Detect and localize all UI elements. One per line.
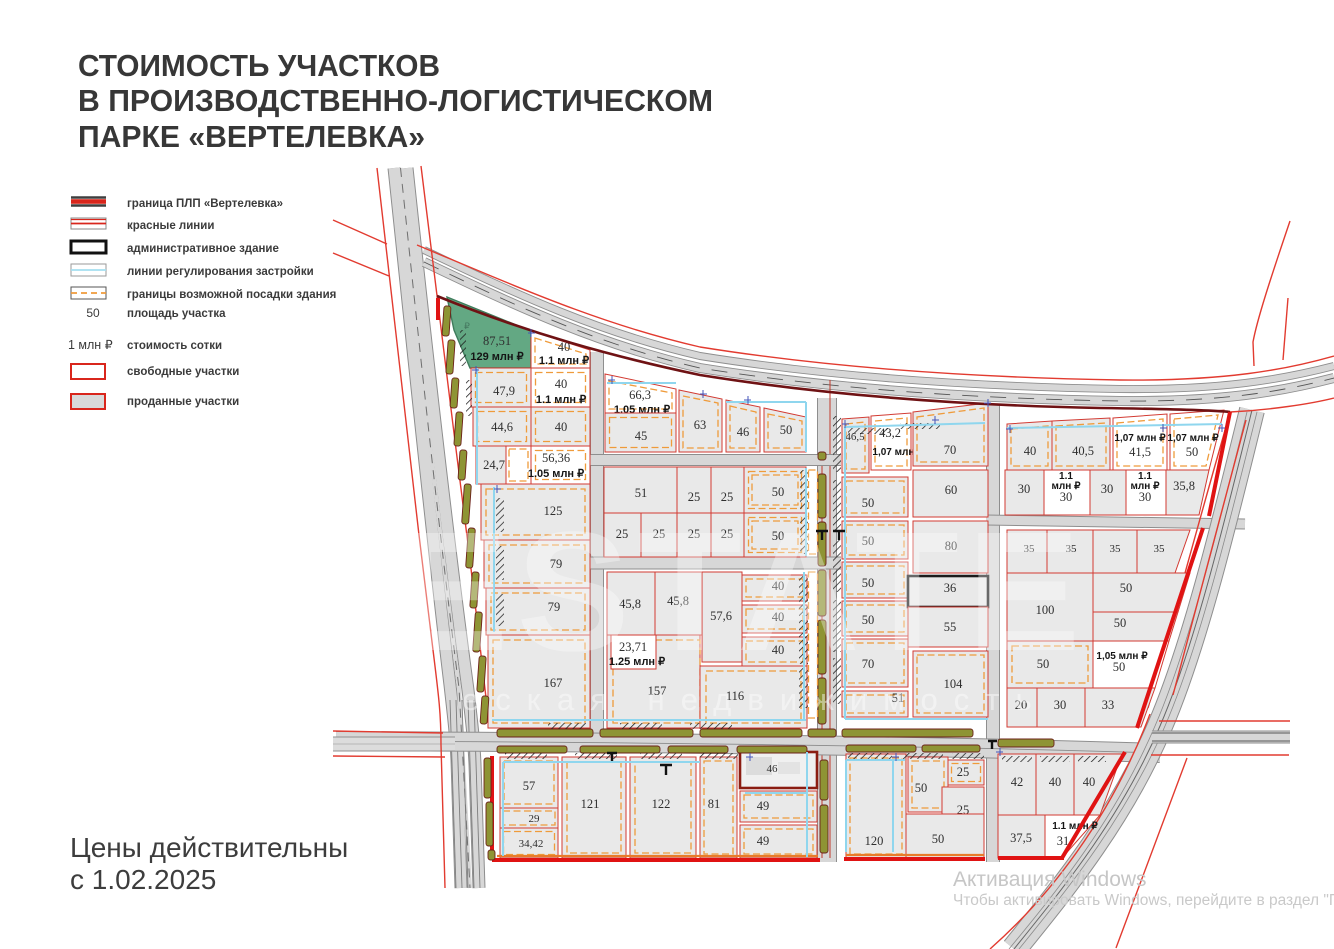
svg-text:30: 30: [1101, 482, 1114, 496]
svg-text:47,9: 47,9: [493, 384, 515, 398]
svg-text:СТОИМОСТЬ УЧАСТКОВ: СТОИМОСТЬ УЧАСТКОВ: [78, 48, 440, 83]
svg-text:66,3: 66,3: [629, 388, 651, 402]
svg-text:45: 45: [635, 429, 648, 443]
svg-text:еская недвижимость: еская недвижимость: [462, 682, 1048, 717]
svg-text:граница ПЛП «Вертелевка»: граница ПЛП «Вертелевка»: [127, 198, 283, 210]
svg-text:с 1.02.2025: с 1.02.2025: [70, 864, 216, 895]
svg-text:120: 120: [865, 834, 884, 848]
svg-text:129 млн ₽: 129 млн ₽: [470, 351, 523, 363]
svg-text:121: 121: [581, 797, 600, 811]
svg-text:25: 25: [957, 765, 970, 779]
svg-text:50: 50: [86, 306, 100, 320]
svg-text:Чтобы активировать Windows, пе: Чтобы активировать Windows, перейдите в …: [953, 892, 1334, 909]
svg-text:63: 63: [694, 418, 707, 432]
svg-text:40,5: 40,5: [1072, 444, 1094, 458]
svg-text:24,7: 24,7: [483, 458, 505, 472]
svg-text:44,6: 44,6: [491, 420, 513, 434]
svg-text:122: 122: [652, 797, 671, 811]
svg-text:линии регулирования застройки: линии регулирования застройки: [127, 266, 314, 278]
svg-text:50: 50: [915, 781, 928, 795]
svg-text:30: 30: [1054, 698, 1067, 712]
svg-text:40: 40: [1024, 444, 1037, 458]
svg-text:свободные участки: свободные участки: [127, 366, 239, 378]
svg-text:60: 60: [945, 483, 958, 497]
svg-text:40: 40: [555, 377, 568, 391]
svg-text:50: 50: [1114, 616, 1127, 630]
svg-text:81: 81: [708, 797, 721, 811]
svg-text:56,36: 56,36: [542, 451, 570, 465]
svg-text:административное здание: административное здание: [127, 243, 279, 255]
svg-text:87,51: 87,51: [483, 334, 511, 348]
svg-text:Активация Windows: Активация Windows: [953, 868, 1147, 891]
svg-text:30: 30: [1139, 490, 1152, 504]
svg-text:29: 29: [529, 813, 541, 825]
svg-text:46: 46: [737, 425, 750, 439]
svg-text:1,07 млн ₽: 1,07 млн ₽: [1167, 433, 1219, 444]
svg-text:35: 35: [1110, 543, 1122, 555]
svg-text:50: 50: [1186, 445, 1199, 459]
svg-text:40: 40: [555, 420, 568, 434]
svg-text:1.1 млн ₽: 1.1 млн ₽: [539, 355, 589, 367]
svg-text:1 млн ₽: 1 млн ₽: [68, 338, 113, 352]
svg-text:площадь участка: площадь участка: [127, 308, 226, 320]
svg-text:1.1 млн ₽: 1.1 млн ₽: [1052, 821, 1098, 832]
svg-text:50: 50: [932, 832, 945, 846]
svg-text:₽: ₽: [464, 321, 470, 331]
svg-text:Цены действительны: Цены действительны: [70, 832, 348, 863]
svg-text:В ПРОИЗВОДСТВЕННО-ЛОГИСТИЧЕСКО: В ПРОИЗВОДСТВЕННО-ЛОГИСТИЧЕСКОМ: [78, 83, 713, 118]
svg-text:37,5: 37,5: [1010, 831, 1032, 845]
svg-text:34,42: 34,42: [519, 838, 544, 850]
svg-text:1.1 млн ₽: 1.1 млн ₽: [536, 394, 586, 406]
svg-text:границы возможной посадки здан: границы возможной посадки здания: [127, 289, 336, 301]
svg-text:1,07 млн ₽: 1,07 млн ₽: [1114, 433, 1166, 444]
svg-text:42: 42: [1011, 775, 1024, 789]
svg-text:40: 40: [1049, 775, 1062, 789]
svg-text:50: 50: [1113, 660, 1126, 674]
svg-text:50: 50: [780, 423, 793, 437]
svg-text:35,8: 35,8: [1173, 479, 1195, 493]
svg-text:35: 35: [1154, 543, 1166, 555]
svg-text:70: 70: [944, 443, 957, 457]
svg-text:33: 33: [1102, 698, 1115, 712]
svg-text:49: 49: [757, 799, 770, 813]
svg-text:1.05 млн ₽: 1.05 млн ₽: [528, 468, 584, 480]
svg-text:40: 40: [1083, 775, 1096, 789]
svg-text:стоимость сотки: стоимость сотки: [127, 340, 222, 352]
svg-text:41,5: 41,5: [1129, 445, 1151, 459]
svg-text:ПАРКЕ «ВЕРТЕЛЕВКА»: ПАРКЕ «ВЕРТЕЛЕВКА»: [78, 119, 425, 154]
svg-text:красные линии: красные линии: [127, 220, 214, 232]
svg-text:49: 49: [757, 834, 770, 848]
svg-text:46: 46: [767, 763, 779, 775]
svg-text:ESTATE: ESTATE: [395, 497, 1088, 687]
svg-text:30: 30: [1018, 482, 1031, 496]
svg-text:проданные участки: проданные участки: [127, 396, 239, 408]
svg-text:57: 57: [523, 779, 536, 793]
svg-text:50: 50: [1120, 581, 1133, 595]
